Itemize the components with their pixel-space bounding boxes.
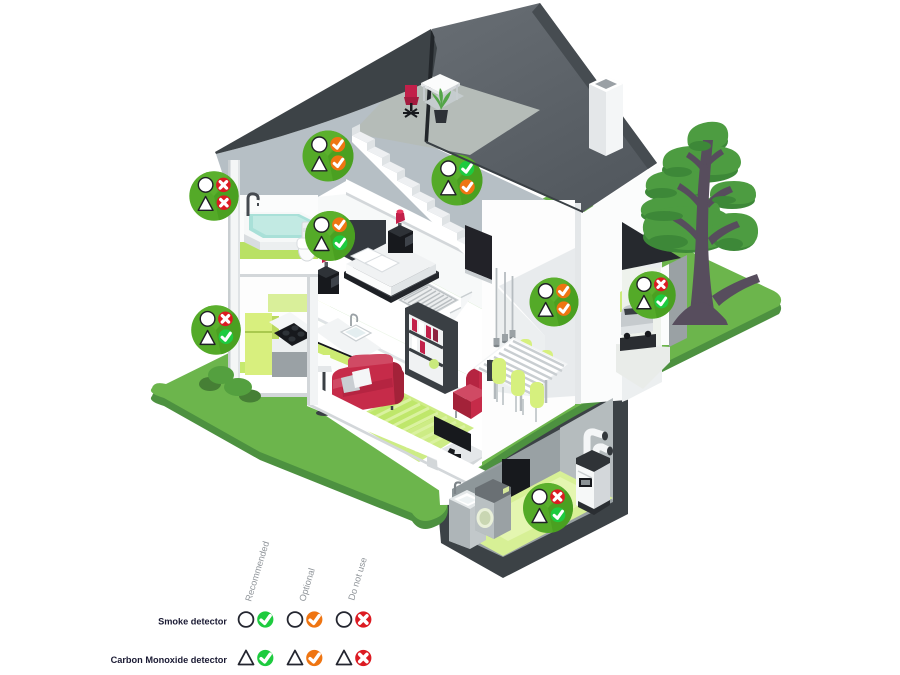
svg-text:Do not use: Do not use bbox=[346, 556, 369, 601]
svg-text:Smoke detector: Smoke detector bbox=[158, 617, 227, 627]
svg-text:Optional: Optional bbox=[297, 567, 317, 603]
svg-text:Carbon Monoxide detector: Carbon Monoxide detector bbox=[111, 655, 228, 665]
svg-text:Recommended: Recommended bbox=[243, 540, 271, 603]
